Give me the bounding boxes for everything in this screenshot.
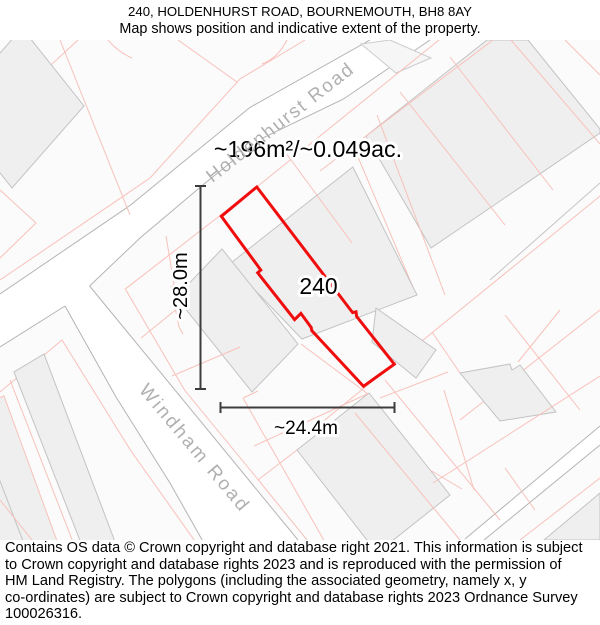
svg-text:~28.0m: ~28.0m: [170, 252, 192, 319]
svg-text:240: 240: [299, 273, 337, 299]
svg-text:~24.4m: ~24.4m: [274, 418, 338, 439]
